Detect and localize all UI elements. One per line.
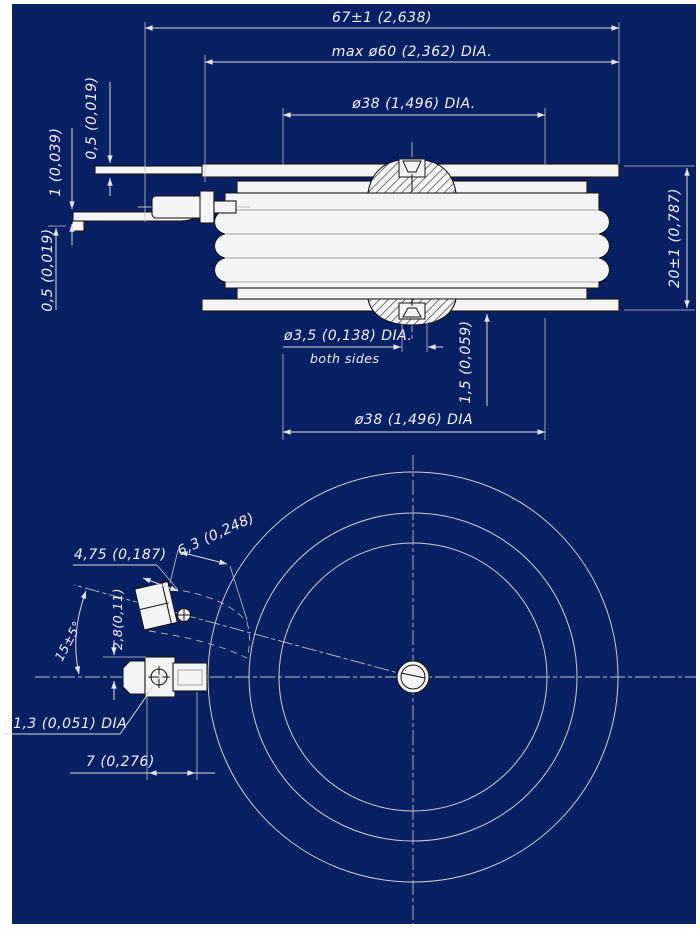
dim-label: 0,5 (0,019) <box>84 76 100 159</box>
sheet-background <box>12 4 696 924</box>
drawing-page: 67±1 (2,638) max ø60 (2,362) DIA. ø38 (1… <box>0 0 700 940</box>
dim-label: 67±1 (2,638) <box>332 10 432 26</box>
gate-lead-tab <box>72 221 84 231</box>
dim-label: ø38 (1,496) DIA. <box>351 96 475 112</box>
cathode-lug <box>123 657 207 697</box>
dim-label: max ø60 (2,362) DIA. <box>332 44 492 60</box>
engineering-drawing: 67±1 (2,638) max ø60 (2,362) DIA. ø38 (1… <box>0 0 700 940</box>
dim-label: ø3,5 (0,138) DIA. <box>283 328 412 344</box>
dim-label: ø1,3 (0,051) DIA <box>3 716 127 732</box>
gate-terminal-body <box>152 196 206 218</box>
dim-label: 7 (0,276) <box>86 754 155 770</box>
bottom-flange <box>237 288 587 300</box>
cathode-lead-strip <box>95 166 205 174</box>
dim-note: both sides <box>310 351 380 366</box>
dim-label: 2,8(0,11) <box>110 588 125 650</box>
gate-terminal-flange <box>200 191 214 223</box>
center-hole <box>397 661 429 693</box>
ceramic-housing <box>215 193 610 288</box>
dim-label: 4,75 (0,187) <box>74 547 167 563</box>
dim-label: 1 (0,039) <box>48 128 64 197</box>
dim-label: 20±1 (0,787) <box>667 188 683 288</box>
dim-label: 0,5 (0,019) <box>40 228 56 311</box>
dim-label: 1,5 (0,059) <box>458 320 474 403</box>
dim-label: ø38 (1,496) DIA <box>354 412 473 428</box>
gate-terminal-stem <box>214 201 236 213</box>
